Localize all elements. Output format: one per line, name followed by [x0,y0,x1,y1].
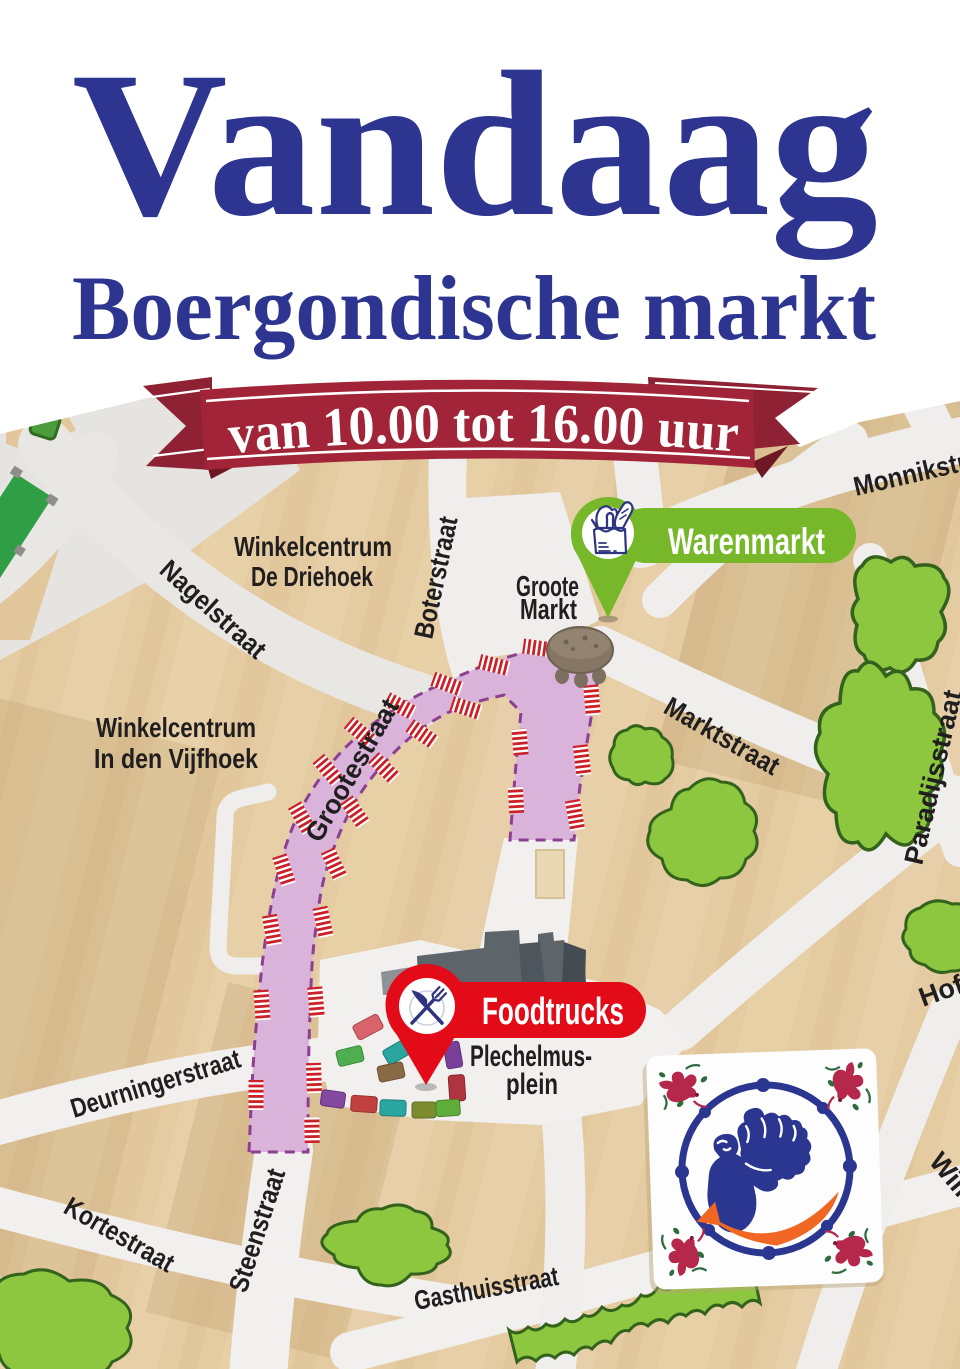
svg-text:De Driehoek: De Driehoek [251,561,373,592]
svg-text:plein: plein [506,1068,558,1101]
svg-text:Warenmarkt: Warenmarkt [668,521,825,562]
svg-text:Winkelcentrum: Winkelcentrum [96,712,256,743]
svg-text:Winkelcentrum: Winkelcentrum [234,531,392,562]
svg-text:In den Vijfhoek: In den Vijfhoek [94,743,258,774]
svg-text:Markt: Markt [520,594,577,626]
svg-text:Foodtrucks: Foodtrucks [482,991,624,1033]
svg-text:Boergondische markt: Boergondische markt [72,257,876,359]
svg-text:Vandaag: Vandaag [72,29,878,260]
